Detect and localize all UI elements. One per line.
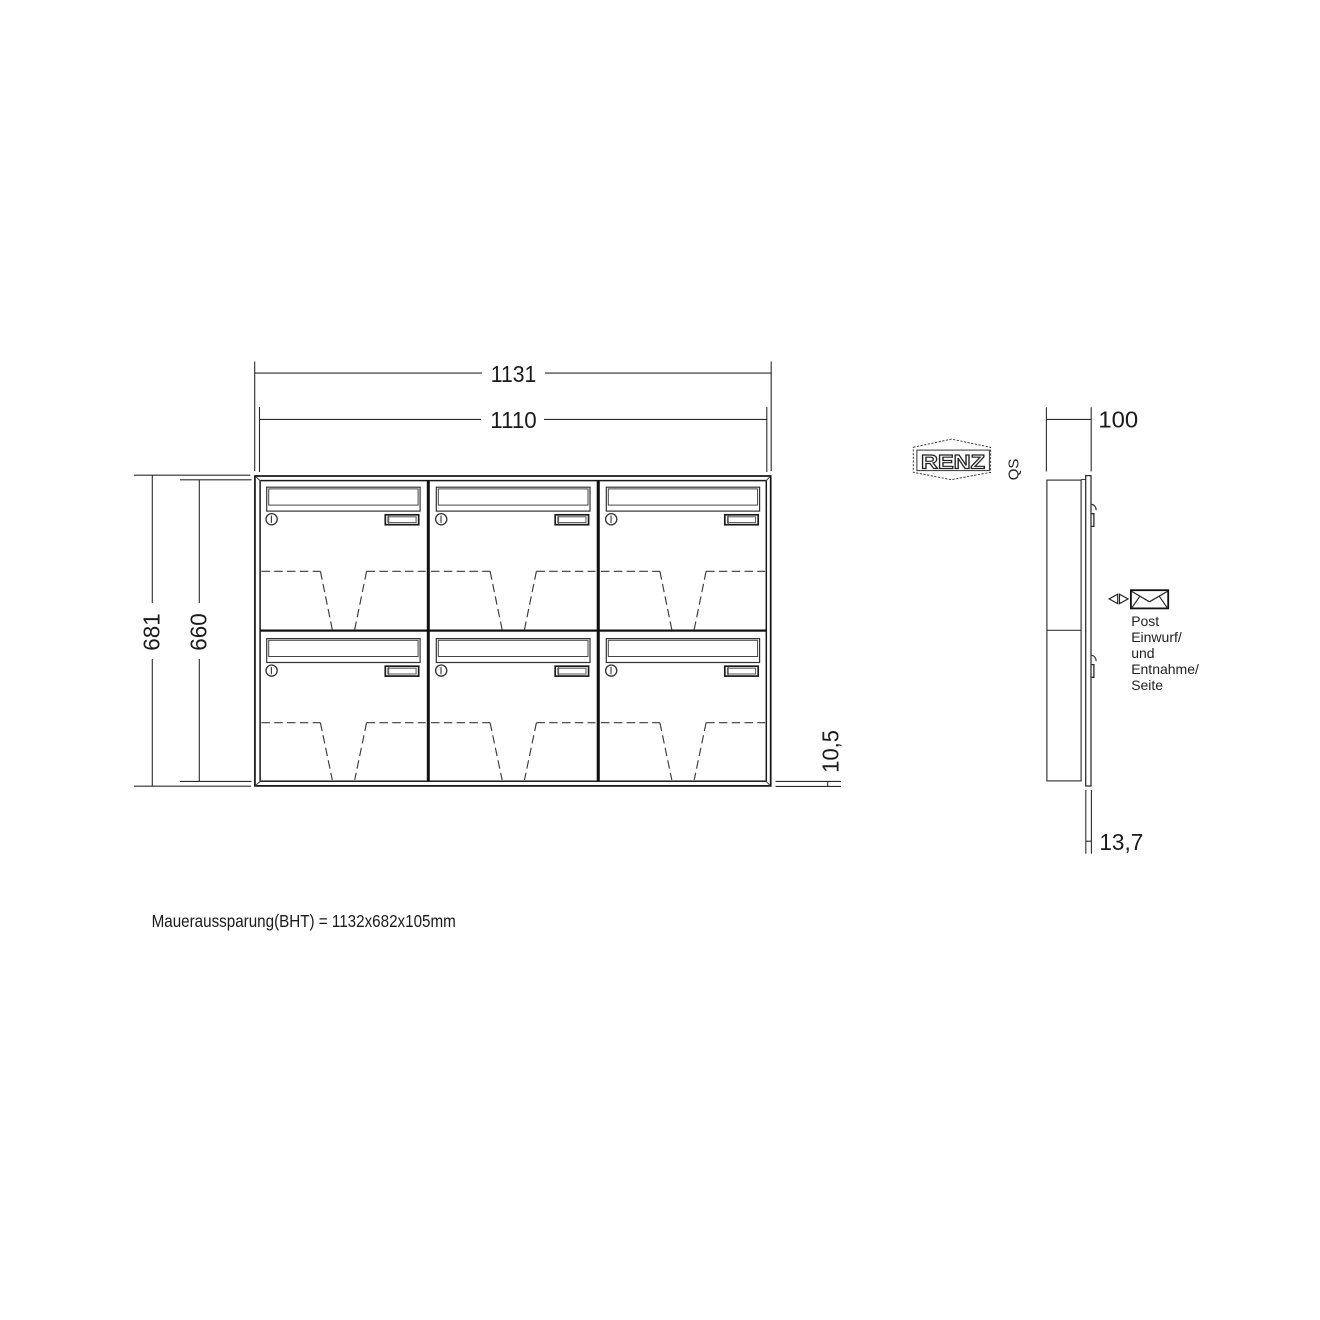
- svg-text:Post: Post: [1131, 613, 1159, 629]
- svg-text:Entnahme/: Entnahme/: [1131, 661, 1199, 677]
- svg-text:Maueraussparung(BHT) = 1132x68: Maueraussparung(BHT) = 1132x682x105mm: [152, 911, 456, 931]
- svg-text:100: 100: [1098, 407, 1138, 433]
- svg-text:660: 660: [186, 613, 212, 651]
- svg-text:Seite: Seite: [1131, 677, 1163, 693]
- svg-text:13,7: 13,7: [1099, 829, 1143, 855]
- svg-text:QS: QS: [1006, 459, 1023, 481]
- svg-text:1110: 1110: [490, 407, 536, 433]
- svg-text:RENZ: RENZ: [921, 451, 985, 473]
- svg-text:und: und: [1131, 645, 1154, 661]
- svg-text:681: 681: [139, 613, 165, 651]
- svg-text:Einwurf/: Einwurf/: [1131, 629, 1182, 645]
- svg-text:10,5: 10,5: [818, 730, 844, 773]
- svg-text:1131: 1131: [491, 361, 537, 387]
